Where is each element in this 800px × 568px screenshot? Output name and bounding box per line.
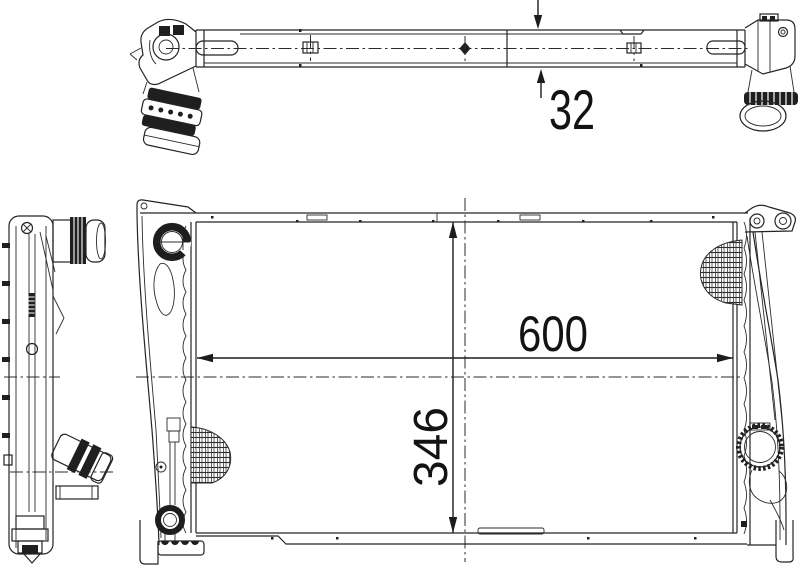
depth-dimension-label: 32 <box>549 78 595 141</box>
side-view-lower-connector <box>49 430 115 486</box>
width-arrow-right <box>717 354 733 362</box>
front-view: 600 346 <box>136 198 795 564</box>
height-dimension-label: 346 <box>405 407 458 487</box>
front-view-right-tank <box>739 205 796 562</box>
width-arrow-left <box>197 354 213 362</box>
fin-area-upper-right <box>700 240 742 305</box>
height-arrow-down <box>449 517 457 533</box>
right-hose-port <box>740 101 786 131</box>
side-view <box>2 216 116 563</box>
height-arrow-up <box>449 222 457 238</box>
depth-arrow-up <box>537 69 545 83</box>
front-view-left-tank <box>137 200 204 564</box>
drawing-canvas: 32 <box>0 0 800 568</box>
side-view-top-connector <box>53 217 106 264</box>
fin-area-lower-left <box>191 427 231 483</box>
top-view-right-port-fitting <box>740 14 798 131</box>
top-view: 32 <box>130 0 798 156</box>
depth-dimension: 32 <box>534 0 595 141</box>
side-view-foot <box>12 516 48 563</box>
drain-plug <box>158 508 182 532</box>
width-dimension-label: 600 <box>518 306 588 362</box>
side-view-fin-tabs <box>2 243 12 465</box>
left-hose-connection <box>135 86 209 155</box>
top-view-left-port-fitting <box>130 19 209 155</box>
radiator-technical-drawing: 32 <box>0 0 800 568</box>
depth-arrow-down <box>534 15 542 29</box>
